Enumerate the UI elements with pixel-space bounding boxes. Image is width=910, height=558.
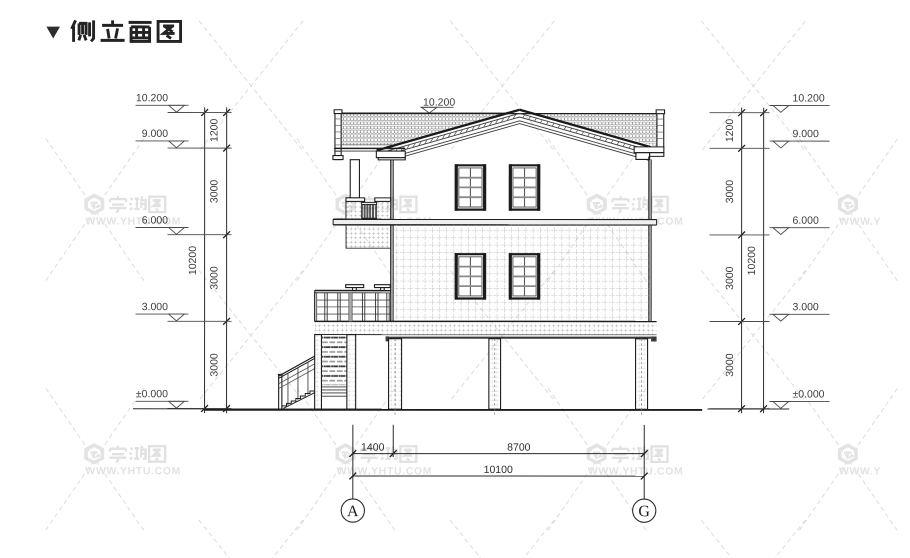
- svg-text:3000: 3000: [724, 180, 736, 204]
- svg-text:6.000: 6.000: [793, 215, 819, 227]
- svg-text:A: A: [347, 503, 359, 520]
- svg-text:3.000: 3.000: [792, 301, 818, 313]
- svg-text:3000: 3000: [724, 353, 736, 377]
- svg-text:1200: 1200: [724, 119, 736, 143]
- svg-text:10200: 10200: [746, 246, 758, 275]
- svg-text:10.200: 10.200: [423, 97, 455, 109]
- svg-text:1200: 1200: [209, 118, 221, 142]
- svg-text:10100: 10100: [484, 464, 513, 476]
- svg-text:6.000: 6.000: [142, 214, 168, 226]
- svg-text:WWW.Y: WWW.Y: [839, 467, 881, 478]
- svg-text:±0.000: ±0.000: [792, 389, 824, 401]
- svg-text:3.000: 3.000: [142, 301, 168, 313]
- svg-text:1400: 1400: [361, 442, 385, 454]
- svg-text:10.200: 10.200: [136, 92, 168, 104]
- svg-text:8700: 8700: [507, 442, 531, 454]
- svg-text:G: G: [638, 503, 650, 520]
- svg-text:3000: 3000: [724, 266, 736, 290]
- svg-text:10.200: 10.200: [793, 93, 825, 105]
- svg-text:3000: 3000: [208, 353, 220, 377]
- svg-text:9.000: 9.000: [793, 128, 819, 140]
- svg-text:10200: 10200: [187, 246, 199, 275]
- svg-text:9.000: 9.000: [142, 128, 168, 140]
- svg-text:±0.000: ±0.000: [136, 388, 168, 400]
- svg-text:WWW.YHTU.COM: WWW.YHTU.COM: [85, 466, 181, 477]
- svg-text:3000: 3000: [208, 266, 220, 290]
- svg-text:3000: 3000: [209, 180, 221, 204]
- svg-text:WWW.Y: WWW.Y: [839, 217, 881, 228]
